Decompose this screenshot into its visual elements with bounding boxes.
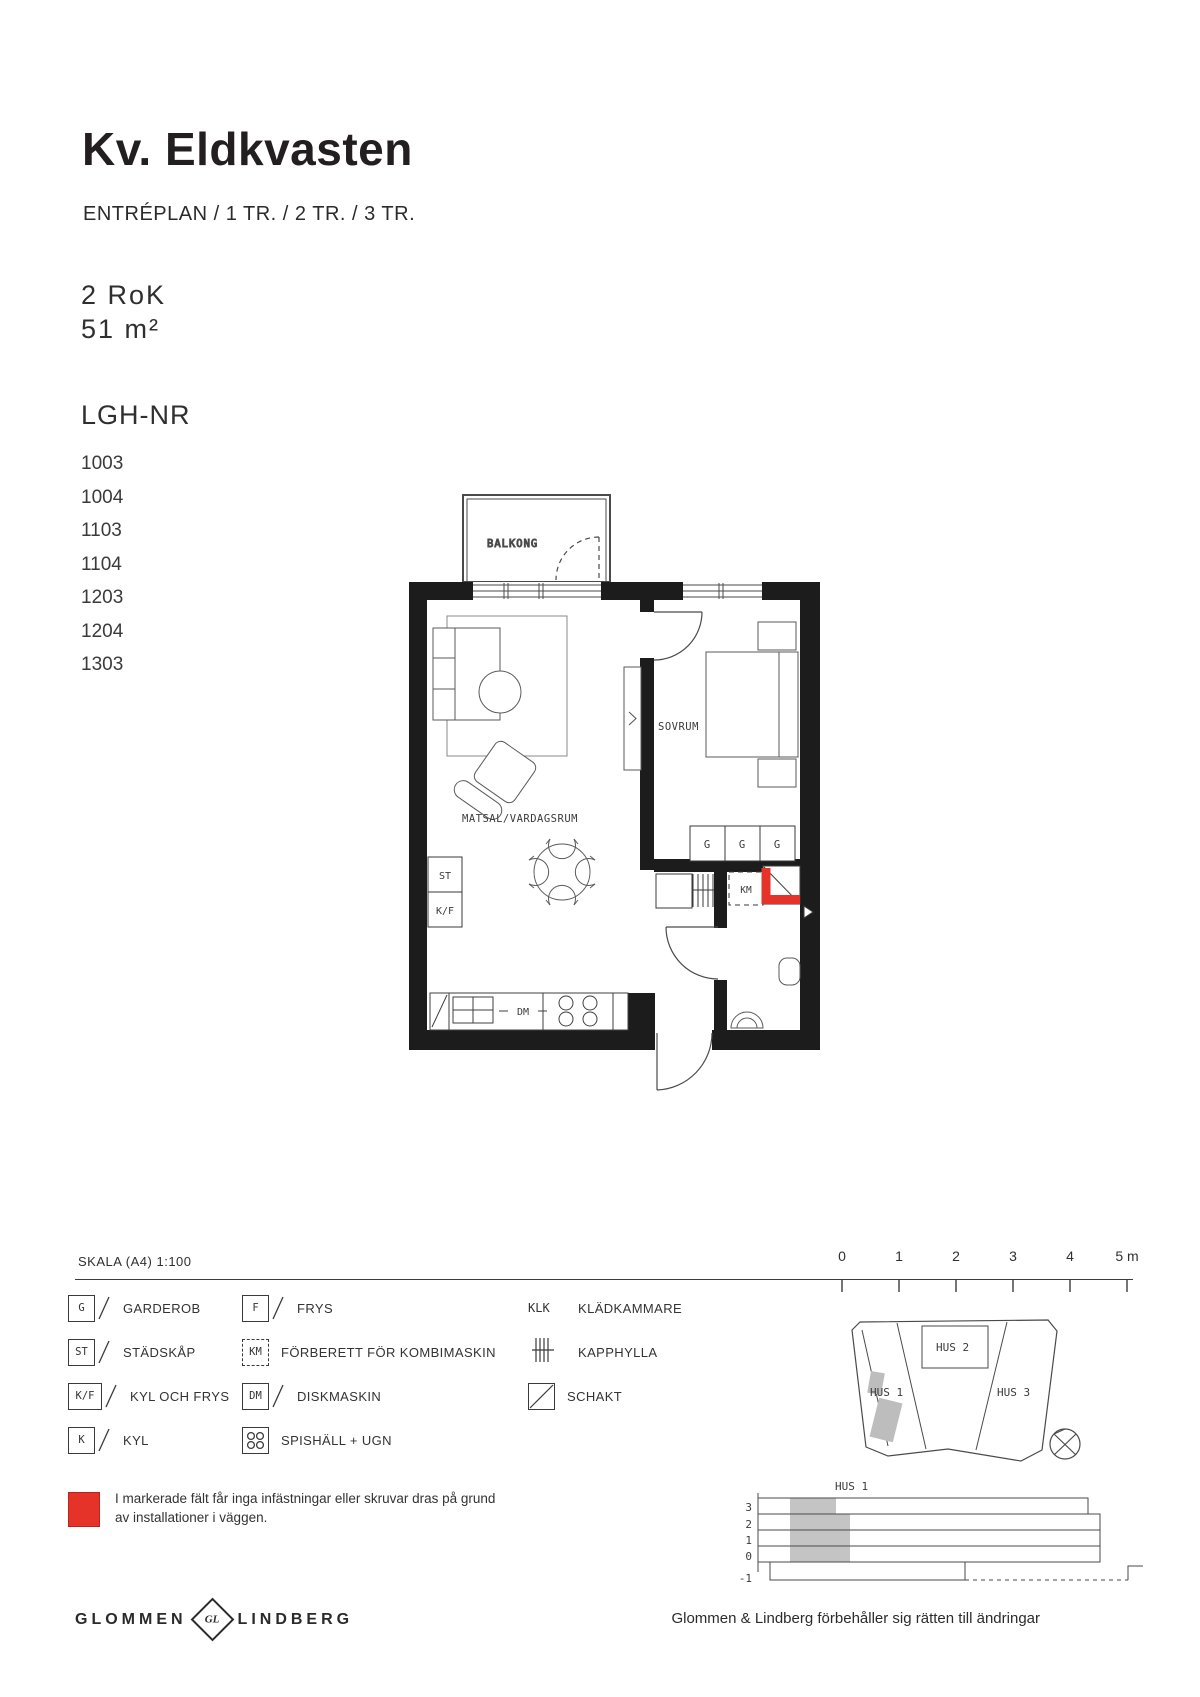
kyl-frys-symbol: K/F (68, 1383, 102, 1410)
legend-col-3: KLK KLÄDKAMMARE KAPPHYLLA SCHAKT (528, 1291, 682, 1423)
level-label: -1 (739, 1572, 752, 1585)
scale-tick-label: 1 (877, 1248, 921, 1264)
lgh-number: 1204 (81, 621, 191, 655)
level-label: 0 (745, 1550, 752, 1563)
legend-col-1: G GARDEROB ST STÄDSKÅP K/F KYL OCH FRYS … (68, 1291, 229, 1467)
lgh-number: 1303 (81, 654, 191, 688)
level-label: 1 (745, 1534, 752, 1547)
stadskap-symbol: ST (68, 1339, 95, 1366)
brand-monogram: GL (205, 1613, 220, 1625)
legend-label: FÖRBERETT FÖR KOMBIMASKIN (281, 1345, 496, 1360)
compass-icon (1050, 1429, 1080, 1459)
kapphylla (692, 874, 714, 907)
brand-logo: GLOMMEN GL LINDBERG (75, 1604, 353, 1635)
legend-item-kyl: K KYL (68, 1423, 229, 1457)
hus1-label: HUS 1 (870, 1386, 903, 1399)
legend-item-kombimaskin: KM FÖRBERETT FÖR KOMBIMASKIN (242, 1335, 496, 1369)
apartment-number-list: LGH-NR 1003 1004 1103 1104 1203 1204 130… (81, 400, 191, 688)
km-label: KM (740, 885, 752, 896)
building-section: HUS 1 3 2 1 0 -1 (735, 1475, 1150, 1600)
balcony-door-arc (556, 537, 599, 580)
toilet (731, 1012, 763, 1028)
scale-ticks (830, 1279, 1140, 1295)
dining-table (534, 844, 590, 900)
wardrobe-g-label: G (774, 839, 780, 851)
lgh-number: 1104 (81, 554, 191, 588)
note-line-2: av installationer i väggen. (115, 1508, 495, 1527)
apartment-facts: 2 RoK 51 m² (81, 278, 166, 346)
section-level-labels: 3 2 1 0 -1 (739, 1501, 752, 1585)
legend-item-stadskap: ST STÄDSKÅP (68, 1335, 229, 1369)
legend-item-kapphylla: KAPPHYLLA (528, 1335, 682, 1369)
legend-label: KYL (123, 1433, 149, 1448)
legend-item-schakt: SCHAKT (528, 1379, 682, 1413)
legend-label: DISKMASKIN (297, 1389, 381, 1404)
side-table (479, 671, 521, 713)
legend-label: SCHAKT (567, 1389, 622, 1404)
bedroom (690, 622, 798, 861)
spishall-ugn-icon (242, 1427, 269, 1454)
bathroom-sink (779, 958, 800, 985)
legend-item-garderob: G GARDEROB (68, 1291, 229, 1325)
entry-door-arc (657, 1033, 712, 1090)
dm-label: DM (517, 1007, 529, 1018)
window-living (473, 582, 601, 600)
legend-item-diskmaskin: DM DISKMASKIN (242, 1379, 496, 1413)
rooms-count: 2 RoK (81, 278, 166, 312)
hus3-label: HUS 3 (997, 1386, 1030, 1399)
bathroom (731, 958, 800, 1028)
lgh-number: 1103 (81, 520, 191, 554)
legend-item-spishall: SPISHÄLL + UGN (242, 1423, 496, 1457)
legend-label: STÄDSKÅP (123, 1345, 196, 1360)
brand-diamond-icon: GL (190, 1598, 234, 1642)
wardrobe-g-label: G (704, 839, 710, 851)
site-plan-building-markers (867, 1371, 902, 1442)
installation-note: I markerade fält får inga infästningar e… (115, 1489, 495, 1527)
bathroom-door-arc (666, 927, 718, 979)
scale-tick-label: 2 (934, 1248, 978, 1264)
scale-label: SKALA (A4) 1:100 (78, 1254, 192, 1269)
area-value: 51 m² (81, 312, 166, 346)
legend-label: GARDEROB (123, 1301, 201, 1316)
level-label: 3 (745, 1501, 752, 1514)
nightstand (758, 622, 796, 650)
bedroom-door-arc (654, 612, 702, 660)
legend-item-frys: F FRYS (242, 1291, 496, 1325)
floorplan-sheet: Kv. Eldkvasten ENTRÉPLAN / 1 TR. / 2 TR.… (0, 0, 1200, 1697)
dm-symbol: DM (242, 1383, 269, 1410)
km-symbol: KM (242, 1339, 269, 1366)
legend-label: KYL OCH FRYS (130, 1389, 229, 1404)
kf-label: K/F (436, 906, 454, 917)
scale-tick-label: 3 (991, 1248, 1035, 1264)
legend-label: KLÄDKAMMARE (578, 1301, 682, 1316)
nightstand (758, 759, 796, 787)
legend-item-kladkammare: KLK KLÄDKAMMARE (528, 1291, 682, 1325)
footer-disclaimer: Glommen & Lindberg förbehåller sig rätte… (671, 1610, 1040, 1627)
hus2-label: HUS 2 (936, 1341, 969, 1354)
kapphylla-icon (528, 1335, 566, 1370)
garderob-symbol: G (68, 1295, 95, 1322)
lgh-number: 1203 (81, 587, 191, 621)
level-label: 2 (745, 1518, 752, 1531)
page-title: Kv. Eldkvasten (82, 122, 413, 176)
site-plan: HUS 1 HUS 2 HUS 3 (835, 1310, 1095, 1475)
klk-symbol: KLK (528, 1301, 566, 1315)
lgh-number: 1003 (81, 453, 191, 487)
legend-label: SPISHÄLL + UGN (281, 1433, 392, 1448)
section-title: HUS 1 (835, 1480, 868, 1493)
window-bedroom (683, 582, 762, 600)
schakt (763, 866, 800, 904)
scale-tick-label: 0 (820, 1248, 864, 1264)
st-label: ST (439, 871, 451, 882)
scale-tick-label: 4 (1048, 1248, 1092, 1264)
balcony-label: BALKONG (487, 538, 538, 550)
brand-left: GLOMMEN (75, 1611, 187, 1629)
wardrobe-g-label: G (739, 839, 745, 851)
note-line-1: I markerade fält får inga infästningar e… (115, 1489, 495, 1508)
red-marking-swatch (68, 1492, 100, 1527)
floorplan-drawing: BALKONG (395, 480, 845, 1105)
legend-item-kyl-frys: K/F KYL OCH FRYS (68, 1379, 229, 1413)
lgh-nr-heading: LGH-NR (81, 400, 191, 431)
bed (706, 652, 798, 757)
legend-label: KAPPHYLLA (578, 1345, 657, 1360)
schakt-icon (528, 1383, 555, 1410)
living-room-label: MATSAL/VARDAGSRUM (462, 813, 578, 825)
hall-wardrobe (656, 874, 692, 908)
floor-subtitle: ENTRÉPLAN / 1 TR. / 2 TR. / 3 TR. (83, 203, 415, 226)
living-room (428, 616, 641, 927)
lgh-number: 1004 (81, 487, 191, 521)
bedroom-label: SOVRUM (658, 721, 699, 733)
kyl-symbol: K (68, 1427, 95, 1454)
legend-col-2: F FRYS KM FÖRBERETT FÖR KOMBIMASKIN DM D… (242, 1291, 496, 1467)
frys-symbol: F (242, 1295, 269, 1322)
scale-tick-label: 5 m (1105, 1248, 1149, 1264)
brand-right: LINDBERG (238, 1611, 354, 1629)
tv-bench (624, 667, 641, 770)
balcony: BALKONG (463, 495, 610, 582)
legend-label: FRYS (297, 1301, 333, 1316)
